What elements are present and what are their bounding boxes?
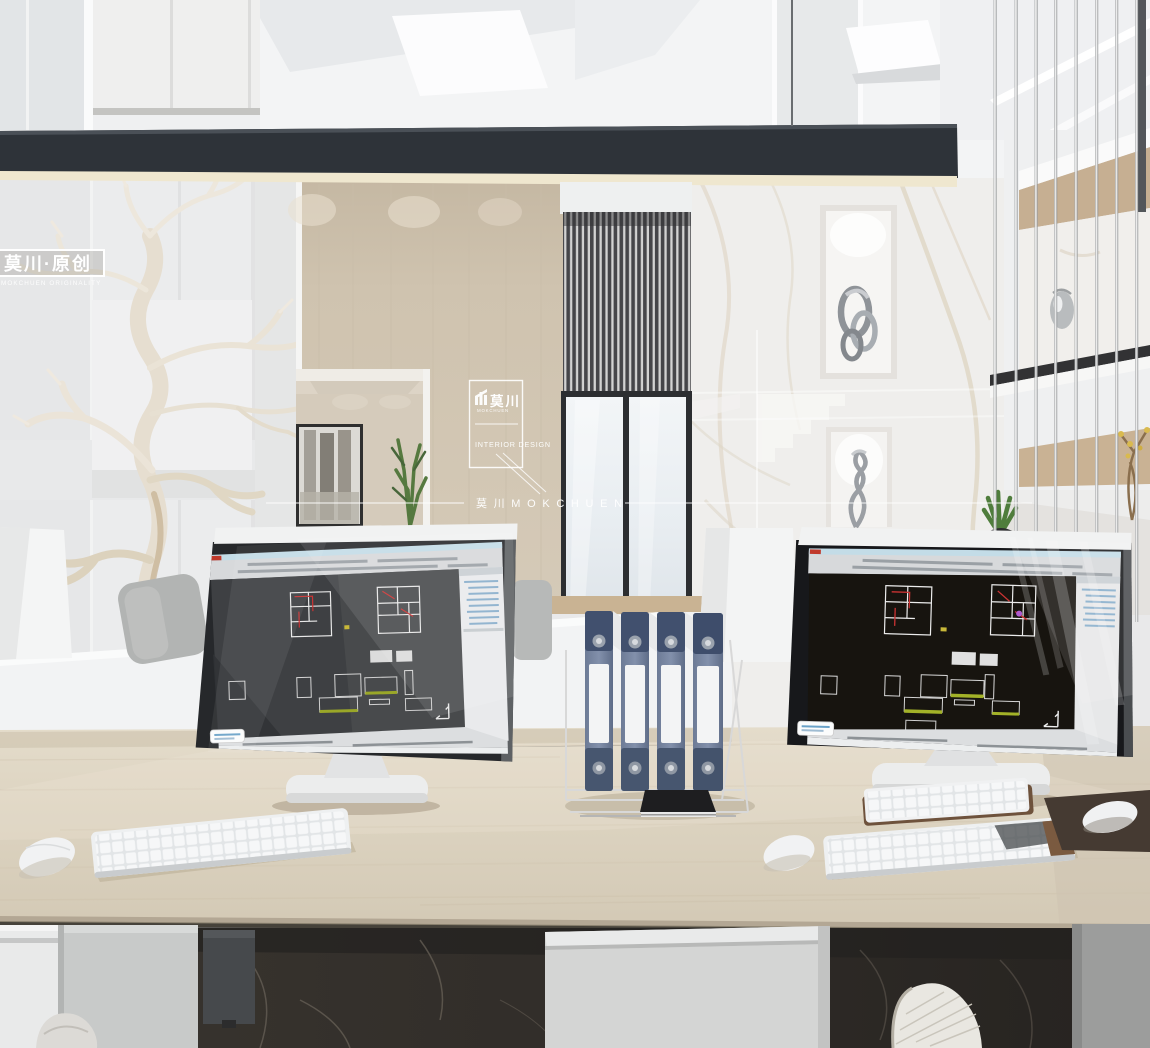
- svg-text:INTERIOR DESIGN: INTERIOR DESIGN: [475, 440, 551, 449]
- svg-text:莫 川 M O K C H U E N: 莫 川 M O K C H U E N: [476, 497, 624, 510]
- svg-text:MOKCHUEN ORIGINALITY: MOKCHUEN ORIGINALITY: [1, 280, 101, 287]
- svg-text:莫川·原创: 莫川·原创: [3, 253, 92, 274]
- svg-text:莫川: 莫川: [489, 393, 521, 409]
- svg-text:MOKCHUEN: MOKCHUEN: [477, 408, 509, 413]
